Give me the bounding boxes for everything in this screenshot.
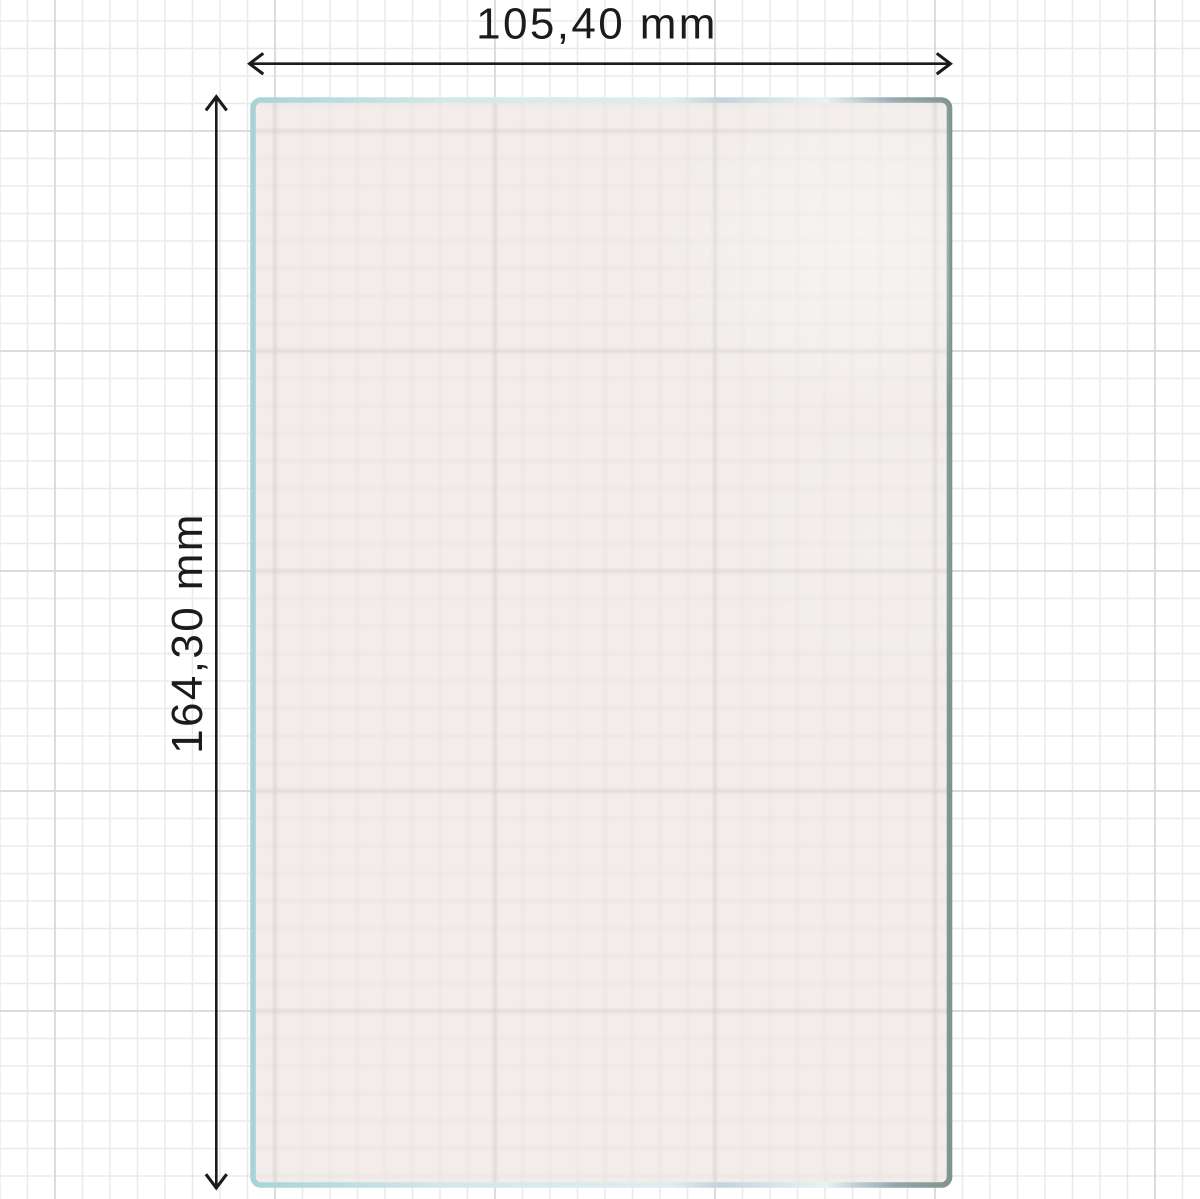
svg-text:164,30 mm: 164,30 mm xyxy=(163,512,212,754)
svg-text:105,40 mm: 105,40 mm xyxy=(476,0,718,49)
